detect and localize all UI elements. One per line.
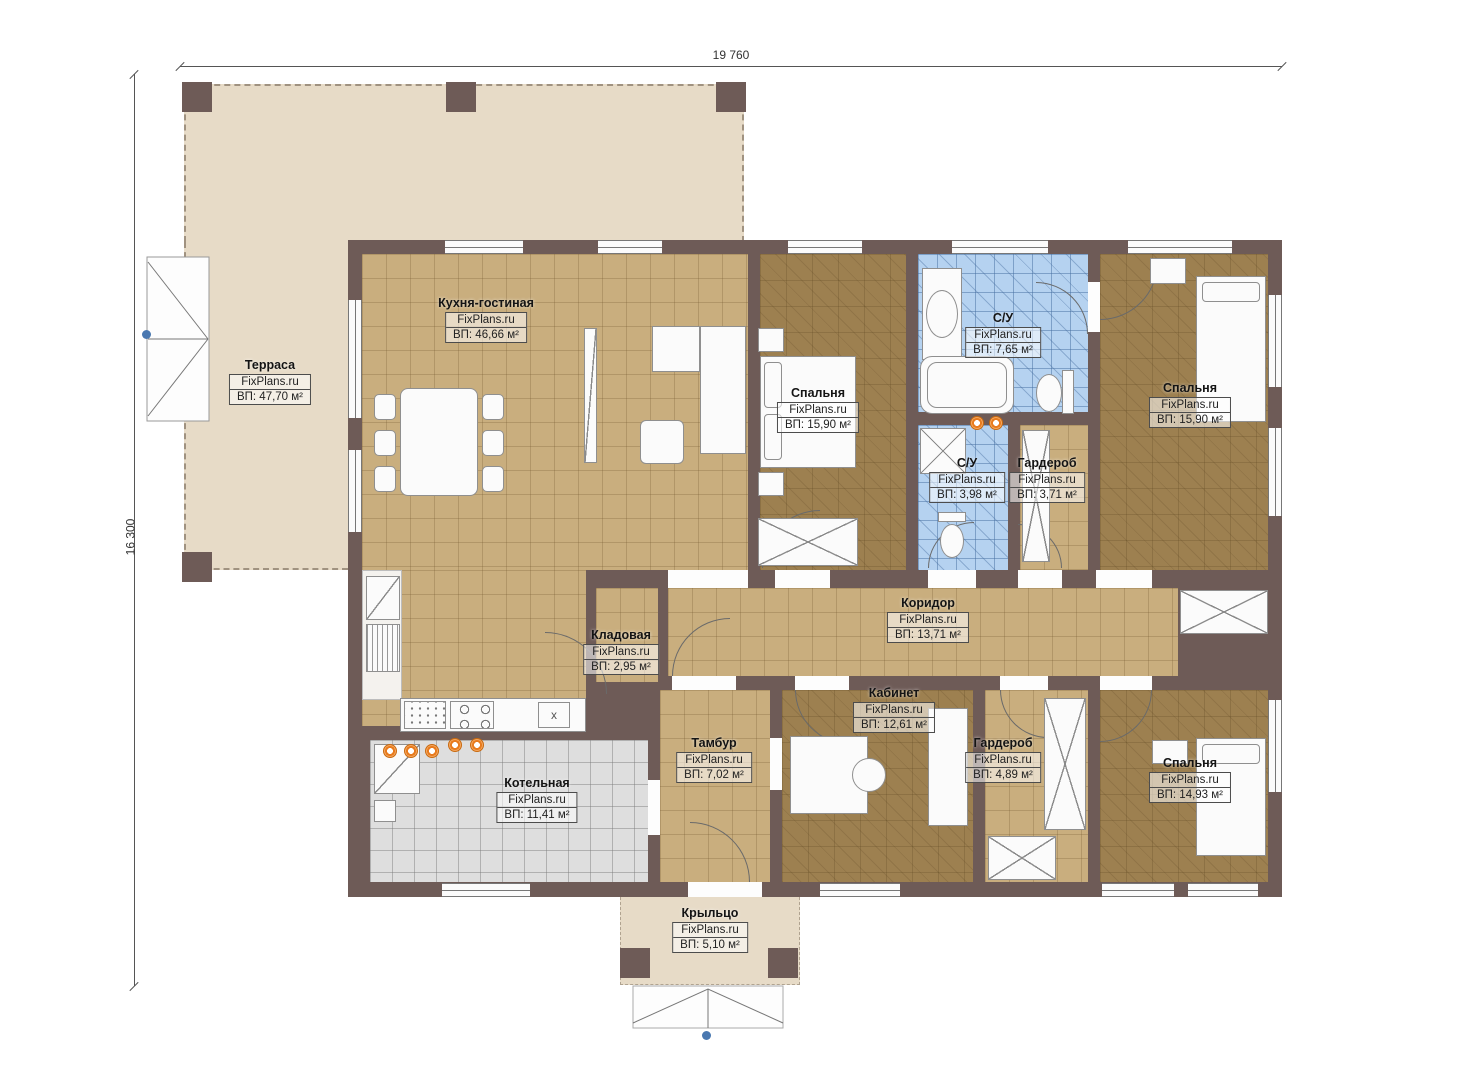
room-name: Коридор: [887, 596, 969, 610]
room-name: Котельная: [496, 776, 577, 790]
room-area: ВП: 3,71 м²: [1010, 488, 1084, 502]
room-label-bathroom-2: С/У FixPlans.ru ВП: 3,98 м²: [929, 456, 1005, 503]
room-area: ВП: 5,10 м²: [673, 938, 747, 952]
nightstand-icon: [758, 328, 784, 352]
office-chair-icon: [852, 758, 886, 792]
window: [1268, 428, 1282, 516]
nightstand-icon: [1150, 258, 1186, 284]
brand-link: FixPlans.ru: [673, 923, 747, 938]
door-opening: [1096, 570, 1152, 588]
brand-link: FixPlans.ru: [778, 403, 858, 418]
room-name: Спальня: [1149, 381, 1231, 395]
room-label-wardrobe-2: Гардероб FixPlans.ru ВП: 4,89 м²: [965, 736, 1041, 783]
room-label-vestibule: Тамбур FixPlans.ru ВП: 7,02 м²: [676, 736, 752, 783]
room-area: ВП: 3,98 м²: [930, 488, 1004, 502]
brand-link: FixPlans.ru: [497, 793, 576, 808]
room-label-pantry: Кладовая FixPlans.ru ВП: 2,95 м²: [583, 628, 659, 675]
appliance-icon: [404, 701, 446, 729]
room-name: Терраса: [229, 358, 311, 372]
room-label-porch: Крыльцо FixPlans.ru ВП: 5,10 м²: [672, 906, 748, 953]
door-opening: [648, 780, 660, 835]
sofa-icon: [700, 326, 746, 454]
room-label-bedroom-2: Спальня FixPlans.ru ВП: 15,90 м²: [1149, 381, 1231, 428]
room-area: ВП: 11,41 м²: [497, 808, 576, 822]
fridge-icon: [366, 576, 400, 620]
pillow-icon: [1202, 282, 1260, 302]
room-area: ВП: 46,66 м²: [446, 328, 526, 342]
porch-marker: [702, 1031, 711, 1040]
room-name: Спальня: [1149, 756, 1231, 770]
radiator-icon: [448, 738, 462, 752]
room-name: Гардероб: [965, 736, 1041, 750]
room-area: ВП: 7,02 м²: [677, 768, 751, 782]
brand-link: FixPlans.ru: [677, 753, 751, 768]
brand-link: FixPlans.ru: [1150, 398, 1230, 413]
brand-link: FixPlans.ru: [966, 753, 1040, 768]
room-area: ВП: 2,95 м²: [584, 660, 658, 674]
room-area: ВП: 14,93 м²: [1150, 788, 1230, 802]
room-label-office: Кабинет FixPlans.ru ВП: 12,61 м²: [853, 686, 935, 733]
bathtub-inner: [927, 362, 1007, 408]
closet-icon: [988, 836, 1056, 880]
door-opening: [770, 738, 782, 790]
radiator-icon: [404, 744, 418, 758]
terrace-step-marker: [142, 330, 151, 339]
equipment-icon: [374, 800, 396, 822]
door-opening: [775, 570, 830, 588]
brand-link: FixPlans.ru: [1150, 773, 1230, 788]
room-area: ВП: 12,61 м²: [854, 718, 934, 732]
brand-link: FixPlans.ru: [930, 473, 1004, 488]
dining-table-icon: [400, 388, 478, 496]
brand-link: FixPlans.ru: [854, 703, 934, 718]
porch-pillar: [620, 948, 650, 978]
window: [820, 883, 900, 897]
window: [1102, 883, 1174, 897]
chair-icon: [482, 466, 504, 492]
brand-link: FixPlans.ru: [584, 645, 658, 660]
terrace-pillar: [716, 82, 746, 112]
window: [348, 450, 362, 532]
window: [952, 240, 1048, 254]
room-name: Кладовая: [583, 628, 659, 642]
room-name: Кухня-гостиная: [438, 296, 534, 310]
chair-icon: [374, 466, 396, 492]
corridor-wardrobe-icon: [1180, 590, 1268, 634]
dimension-line-top: [180, 66, 1282, 67]
cabinet-icon: [366, 624, 400, 672]
room-label-wardrobe-1: Гардероб FixPlans.ru ВП: 3,71 м²: [1009, 456, 1085, 503]
window: [445, 240, 523, 254]
window: [788, 240, 862, 254]
porch-door-opening: [688, 882, 762, 897]
brand-link: FixPlans.ru: [230, 375, 310, 390]
toilet-tank-icon: [1062, 370, 1074, 414]
tv-stand-icon: [584, 328, 597, 463]
dimension-width-label: 19 760: [713, 48, 750, 62]
door-opening: [928, 570, 976, 588]
chair-icon: [374, 430, 396, 456]
chair-icon: [482, 394, 504, 420]
room-area: ВП: 15,90 м²: [778, 418, 858, 432]
brand-link: FixPlans.ru: [1010, 473, 1084, 488]
window: [1188, 883, 1258, 897]
room-name: Крыльцо: [672, 906, 748, 920]
room-label-boiler-room: Котельная FixPlans.ru ВП: 11,41 м²: [496, 776, 577, 823]
door-opening: [1100, 676, 1152, 690]
room-label-bathroom-1: С/У FixPlans.ru ВП: 7,65 м²: [965, 311, 1041, 358]
door-opening: [668, 570, 748, 588]
terrace-pillar: [182, 82, 212, 112]
room-label-bedroom-1: Спальня FixPlans.ru ВП: 15,90 м²: [777, 386, 859, 433]
room-name: Кабинет: [853, 686, 935, 700]
room-label-corridor: Коридор FixPlans.ru ВП: 13,71 м²: [887, 596, 969, 643]
toilet-tank-icon: [938, 512, 966, 522]
radiator-icon: [470, 738, 484, 752]
chair-icon: [374, 394, 396, 420]
closet-icon: [1044, 698, 1086, 830]
door-opening: [672, 676, 736, 690]
room-area: ВП: 15,90 м²: [1150, 413, 1230, 427]
room-name: Спальня: [777, 386, 859, 400]
stove-icon: [450, 701, 494, 729]
terrace-pillar: [446, 82, 476, 112]
brand-link: FixPlans.ru: [888, 613, 968, 628]
room-name: Гардероб: [1009, 456, 1085, 470]
dimension-height-label: 16 300: [123, 519, 137, 556]
radiator-icon: [989, 416, 1003, 430]
window: [598, 240, 662, 254]
kitchen-sink-icon: x: [538, 702, 570, 728]
door-opening: [795, 676, 849, 690]
room-area: ВП: 4,89 м²: [966, 768, 1040, 782]
bathroom-sink-icon: [926, 290, 958, 338]
toilet-icon: [1036, 374, 1062, 412]
radiator-icon: [425, 744, 439, 758]
door-opening: [1088, 282, 1100, 332]
toilet-icon: [940, 524, 964, 558]
room-area: ВП: 13,71 м²: [888, 628, 968, 642]
door-opening: [1000, 676, 1048, 690]
room-label-kitchen-living: Кухня-гостиная FixPlans.ru ВП: 46,66 м²: [438, 296, 534, 343]
sofa-corner-icon: [652, 326, 700, 372]
brand-link: FixPlans.ru: [966, 328, 1040, 343]
brand-link: FixPlans.ru: [446, 313, 526, 328]
window: [348, 300, 362, 418]
terrace-steps: [146, 256, 210, 422]
room-label-bedroom-3: Спальня FixPlans.ru ВП: 14,93 м²: [1149, 756, 1231, 803]
room-name: Тамбур: [676, 736, 752, 750]
room-area: ВП: 47,70 м²: [230, 390, 310, 404]
room-label-terrace: Терраса FixPlans.ru ВП: 47,70 м²: [229, 358, 311, 405]
armchair-icon: [640, 420, 684, 464]
wardrobe-icon: [758, 518, 858, 566]
nightstand-icon: [758, 472, 784, 496]
radiator-icon: [970, 416, 984, 430]
window: [442, 883, 530, 897]
terrace-pillar: [182, 552, 212, 582]
window: [1268, 295, 1282, 387]
floor-plan: x: [0, 0, 1474, 1080]
chair-icon: [482, 430, 504, 456]
radiator-icon: [383, 744, 397, 758]
window: [1268, 700, 1282, 792]
window: [1128, 240, 1232, 254]
room-area: ВП: 7,65 м²: [966, 343, 1040, 357]
door-opening: [1018, 570, 1062, 588]
room-name: С/У: [965, 311, 1041, 325]
porch-pillar: [768, 948, 798, 978]
room-name: С/У: [929, 456, 1005, 470]
